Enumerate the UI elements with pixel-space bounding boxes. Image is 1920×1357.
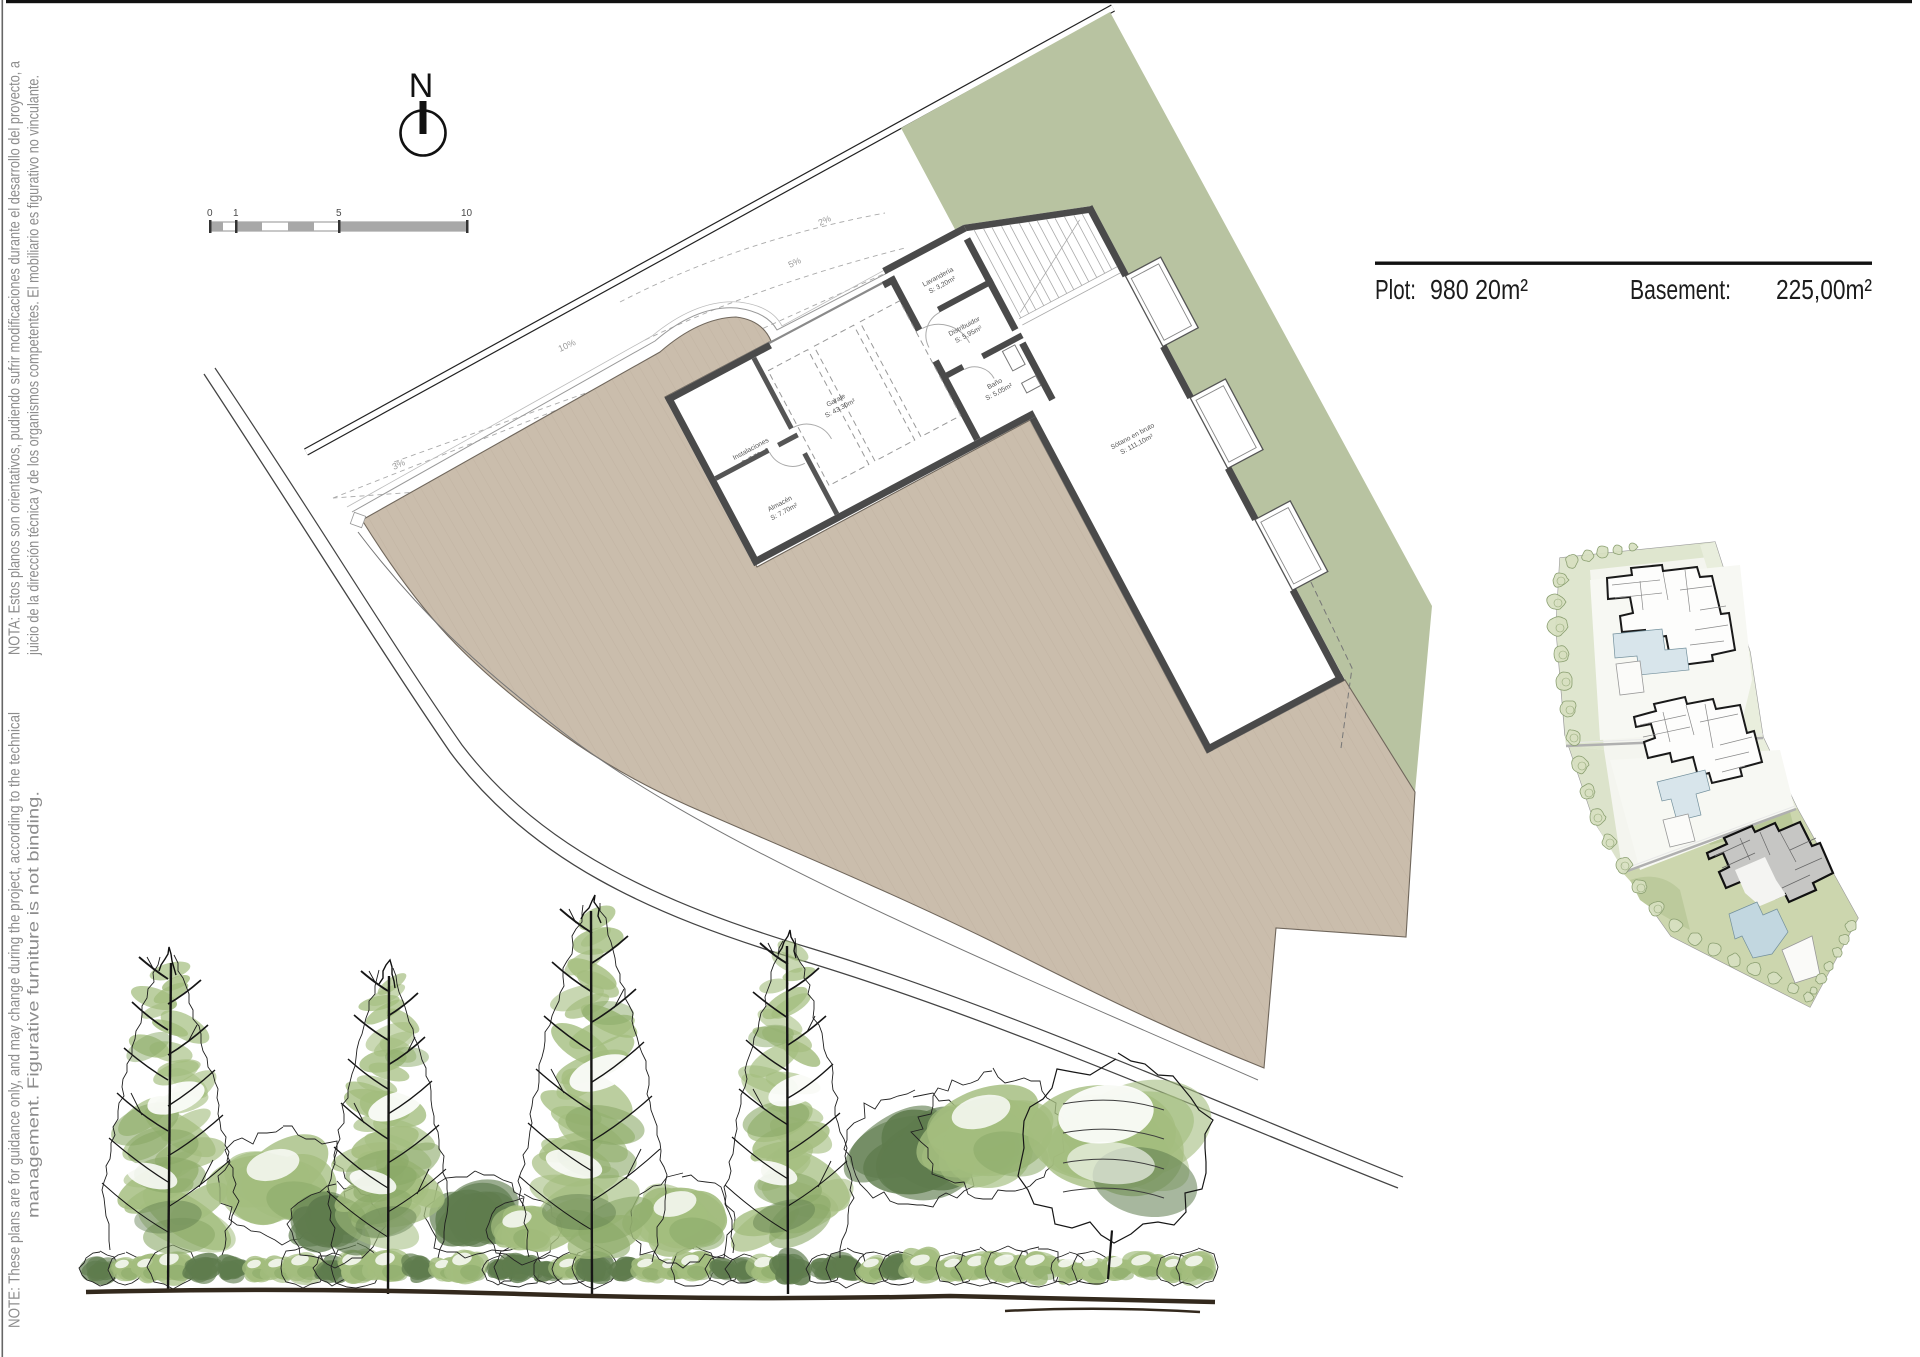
svg-text:NOTA: Estos planos son orienta: NOTA: Estos planos son orientativos, pud… [7, 61, 24, 655]
svg-text:5: 5 [336, 208, 342, 219]
svg-text:Plot:: Plot: [1375, 274, 1416, 305]
svg-text:Basement:: Basement: [1630, 274, 1731, 305]
svg-text:N: N [409, 67, 434, 105]
svg-text:juicio de la dirección técnica: juicio de la dirección técnica y de los … [26, 75, 43, 656]
svg-text:1: 1 [233, 208, 239, 219]
svg-text:management. Figurative furnitu: management. Figurative furniture is not … [26, 791, 43, 1218]
svg-text:NOTE: These plans are for guid: NOTE: These plans are for guidance only,… [7, 712, 24, 1328]
svg-text:0: 0 [207, 208, 213, 219]
svg-text:10: 10 [461, 208, 473, 219]
svg-text:225,00m²: 225,00m² [1776, 274, 1872, 305]
svg-text:980 20m²: 980 20m² [1430, 274, 1528, 305]
